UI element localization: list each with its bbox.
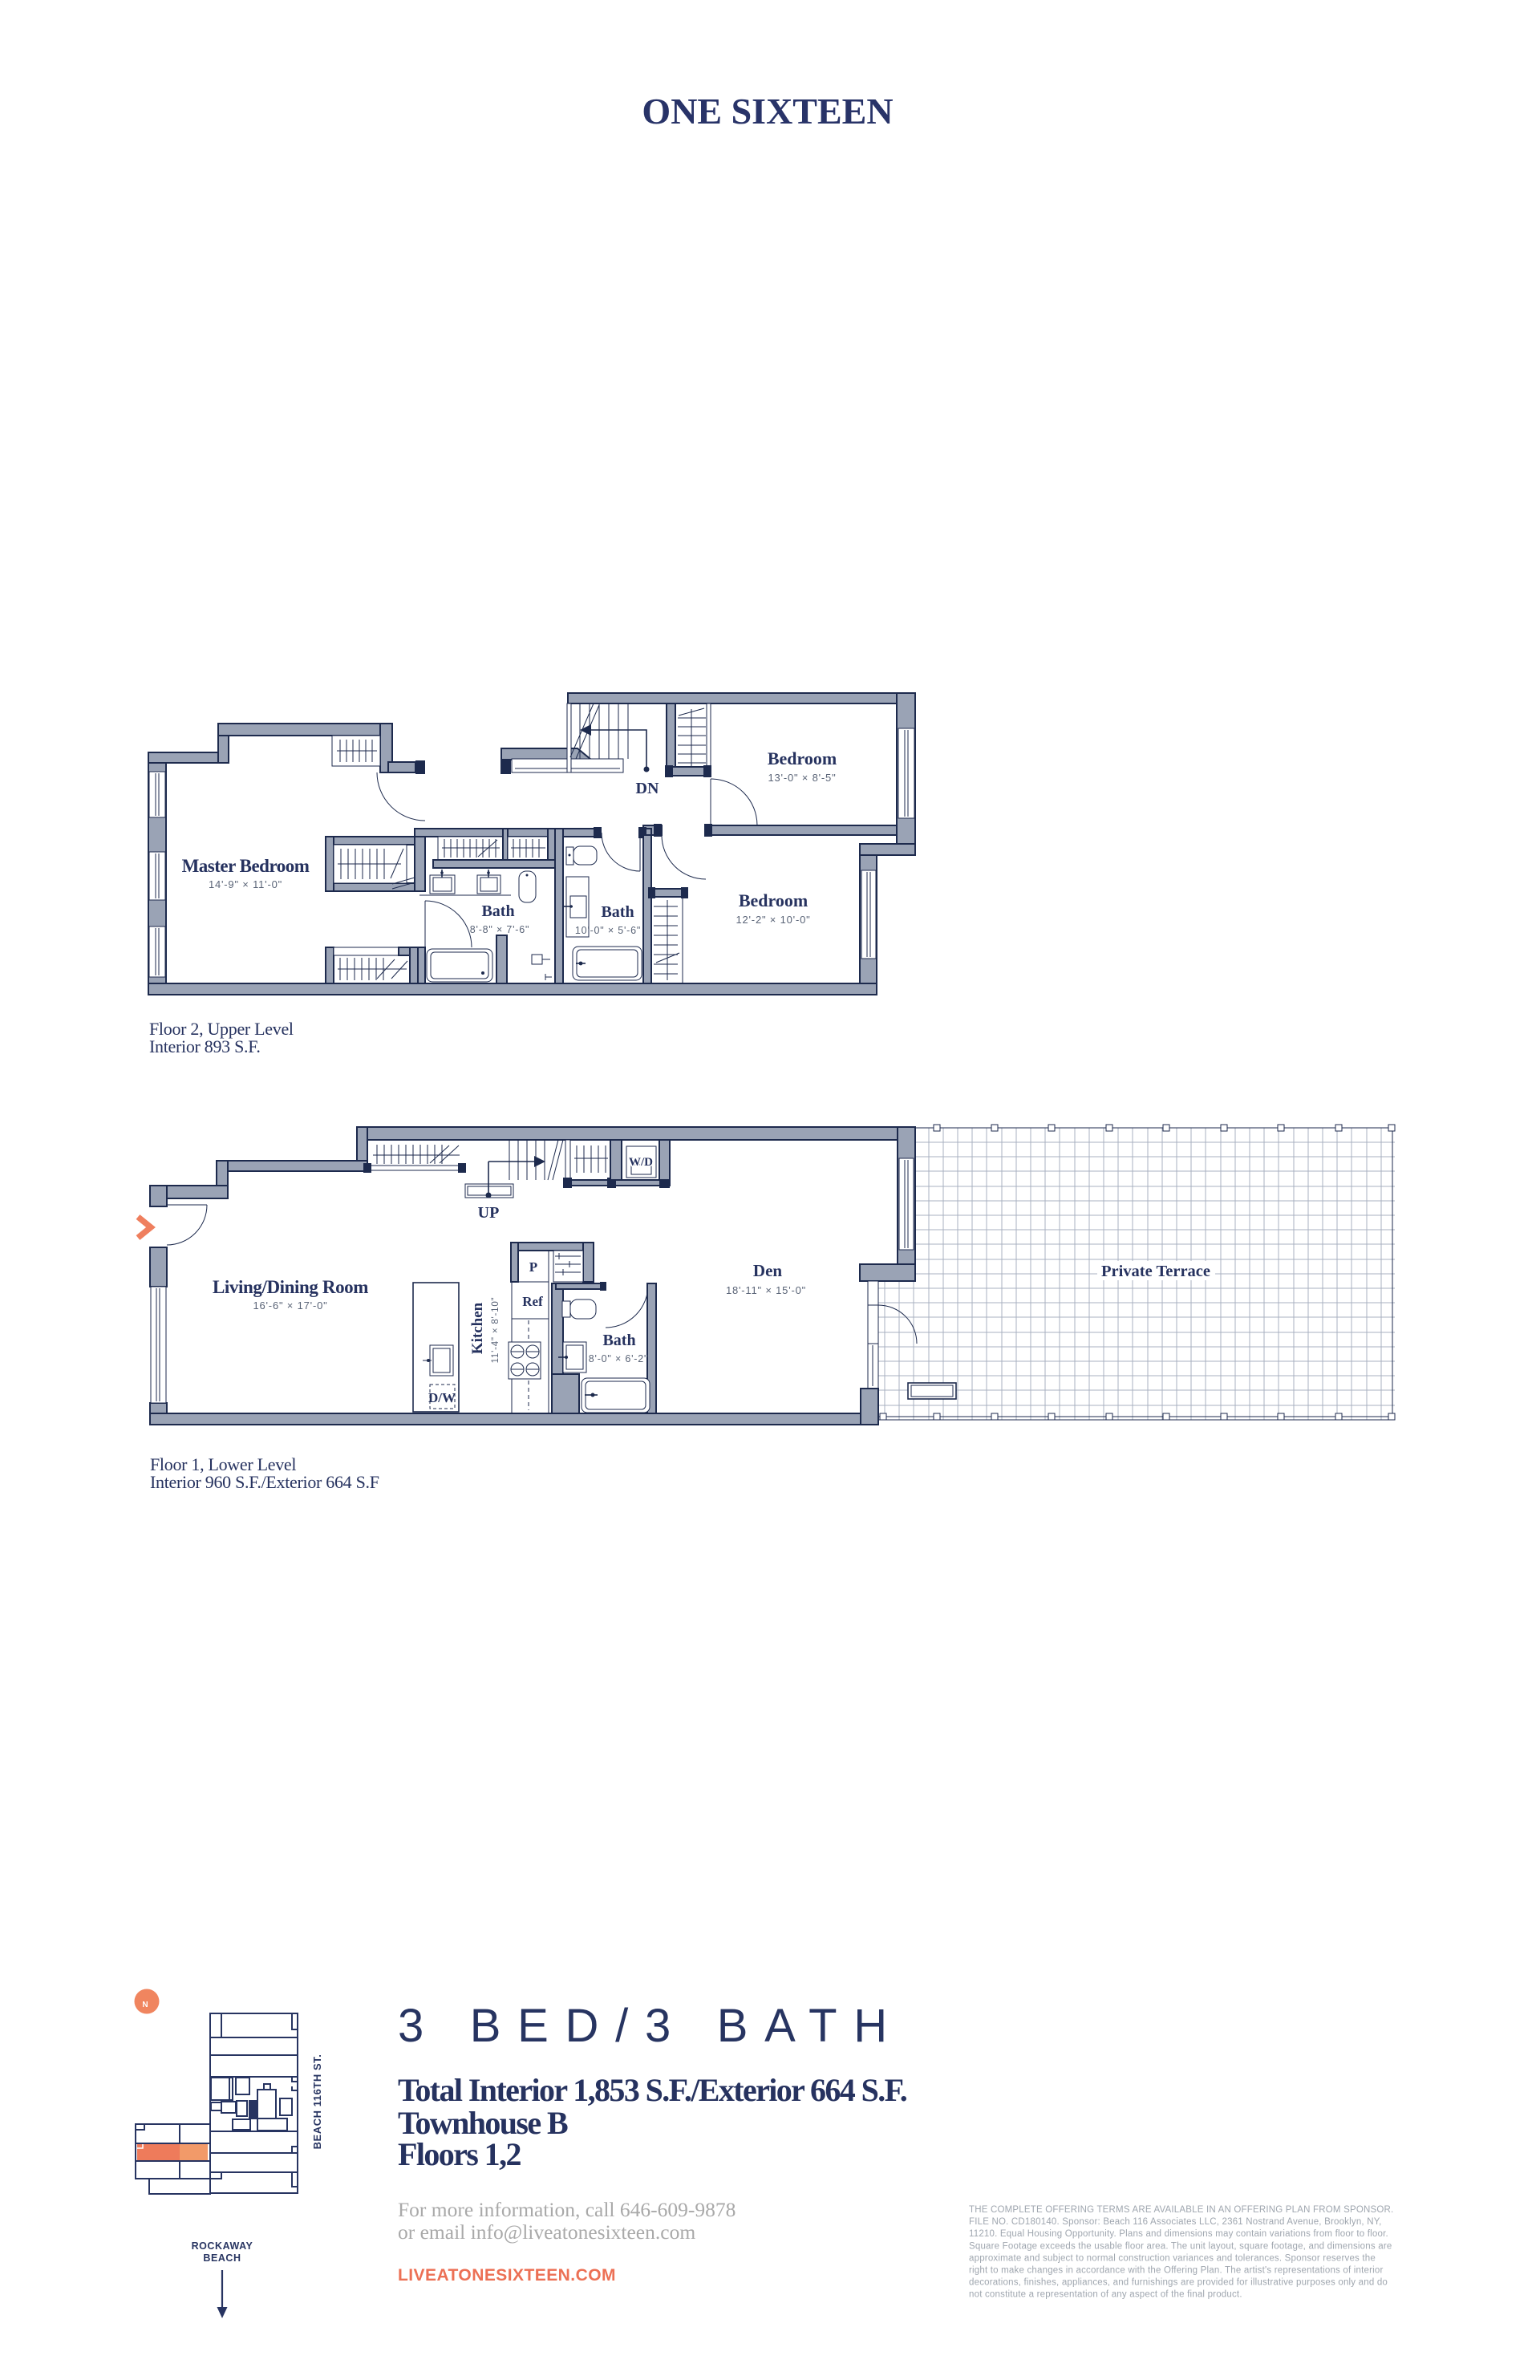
- svg-text:not constitute a representatio: not constitute a representation of any a…: [969, 2290, 1242, 2300]
- svg-text:11210. Equal Housing Opportuni: 11210. Equal Housing Opportunity. Plans …: [969, 2229, 1388, 2239]
- svg-text:or email info@liveatonesixteen: or email info@liveatonesixteen.com: [398, 2220, 695, 2244]
- svg-text:decorations, finishes, applian: decorations, finishes, appliances, and f…: [969, 2278, 1388, 2288]
- svg-text:8'-8" × 7'-6": 8'-8" × 7'-6": [470, 924, 529, 935]
- svg-text:Master Bedroom: Master Bedroom: [182, 856, 310, 876]
- svg-text:Living/Dining Room: Living/Dining Room: [213, 1277, 368, 1297]
- svg-text:For more information, call 646: For more information, call 646-609-9878: [398, 2198, 736, 2221]
- svg-text:Bedroom: Bedroom: [739, 890, 808, 910]
- svg-text:N: N: [142, 2001, 148, 2009]
- svg-text:Total Interior 1,853 S.F./Exte: Total Interior 1,853 S.F./Exterior 664 S…: [398, 2072, 907, 2108]
- svg-text:8'-0" × 6'-2": 8'-0" × 6'-2": [589, 1353, 648, 1364]
- svg-text:Square Footage exceeds the usa: Square Footage exceeds the usable floor …: [969, 2241, 1392, 2251]
- svg-text:11'-4" × 8'-10": 11'-4" × 8'-10": [491, 1297, 500, 1364]
- svg-text:BEACH: BEACH: [203, 2252, 241, 2264]
- svg-text:ONE SIXTEEN: ONE SIXTEEN: [642, 91, 893, 132]
- svg-text:16'-6" × 17'-0": 16'-6" × 17'-0": [253, 1299, 327, 1312]
- svg-text:Bedroom: Bedroom: [768, 748, 837, 768]
- svg-text:D/W: D/W: [428, 1390, 456, 1405]
- svg-text:P: P: [529, 1259, 537, 1275]
- svg-text:BEACH 116TH ST.: BEACH 116TH ST.: [311, 2054, 323, 2150]
- svg-text:Bath: Bath: [481, 902, 514, 920]
- svg-text:Floors 1,2: Floors 1,2: [398, 2136, 521, 2172]
- svg-text:LIVEATONESIXTEEN.COM: LIVEATONESIXTEEN.COM: [398, 2266, 616, 2285]
- svg-text:THE COMPLETE OFFERING TERMS AR: THE COMPLETE OFFERING TERMS ARE AVAILABL…: [969, 2205, 1393, 2215]
- svg-text:DN: DN: [636, 780, 659, 797]
- svg-text:Interior 960 S.F./Exterior 664: Interior 960 S.F./Exterior 664 S.F: [150, 1472, 379, 1492]
- svg-text:Interior 893 S.F.: Interior 893 S.F.: [149, 1036, 261, 1056]
- svg-text:Ref: Ref: [522, 1294, 543, 1309]
- svg-text:W/D: W/D: [629, 1156, 653, 1169]
- svg-text:Kitchen: Kitchen: [469, 1302, 486, 1354]
- svg-text:12'-2" × 10'-0": 12'-2" × 10'-0": [736, 914, 810, 926]
- svg-text:FILE NO. CD180140. Sponsor: Be: FILE NO. CD180140. Sponsor: Beach 116 As…: [969, 2217, 1382, 2227]
- svg-text:Bath: Bath: [601, 903, 634, 921]
- svg-text:13'-0" × 8'-5": 13'-0" × 8'-5": [768, 772, 836, 784]
- svg-text:UP: UP: [478, 1204, 500, 1222]
- svg-text:Den: Den: [753, 1261, 782, 1280]
- svg-text:Bath: Bath: [602, 1332, 635, 1349]
- svg-text:Private Terrace: Private Terrace: [1101, 1263, 1210, 1280]
- svg-text:3 BED/3 BATH: 3 BED/3 BATH: [398, 2000, 904, 2052]
- svg-text:14'-9" × 11'-0": 14'-9" × 11'-0": [209, 878, 282, 890]
- svg-text:10'-0" × 5'-6": 10'-0" × 5'-6": [575, 925, 641, 936]
- svg-text:ROCKAWAY: ROCKAWAY: [192, 2240, 253, 2252]
- svg-text:approximate and subject to nor: approximate and subject to normal constr…: [969, 2253, 1376, 2263]
- svg-text:18'-11" × 15'-0": 18'-11" × 15'-0": [726, 1284, 806, 1296]
- svg-text:right to make changes in accor: right to make changes in accordance with…: [969, 2266, 1384, 2276]
